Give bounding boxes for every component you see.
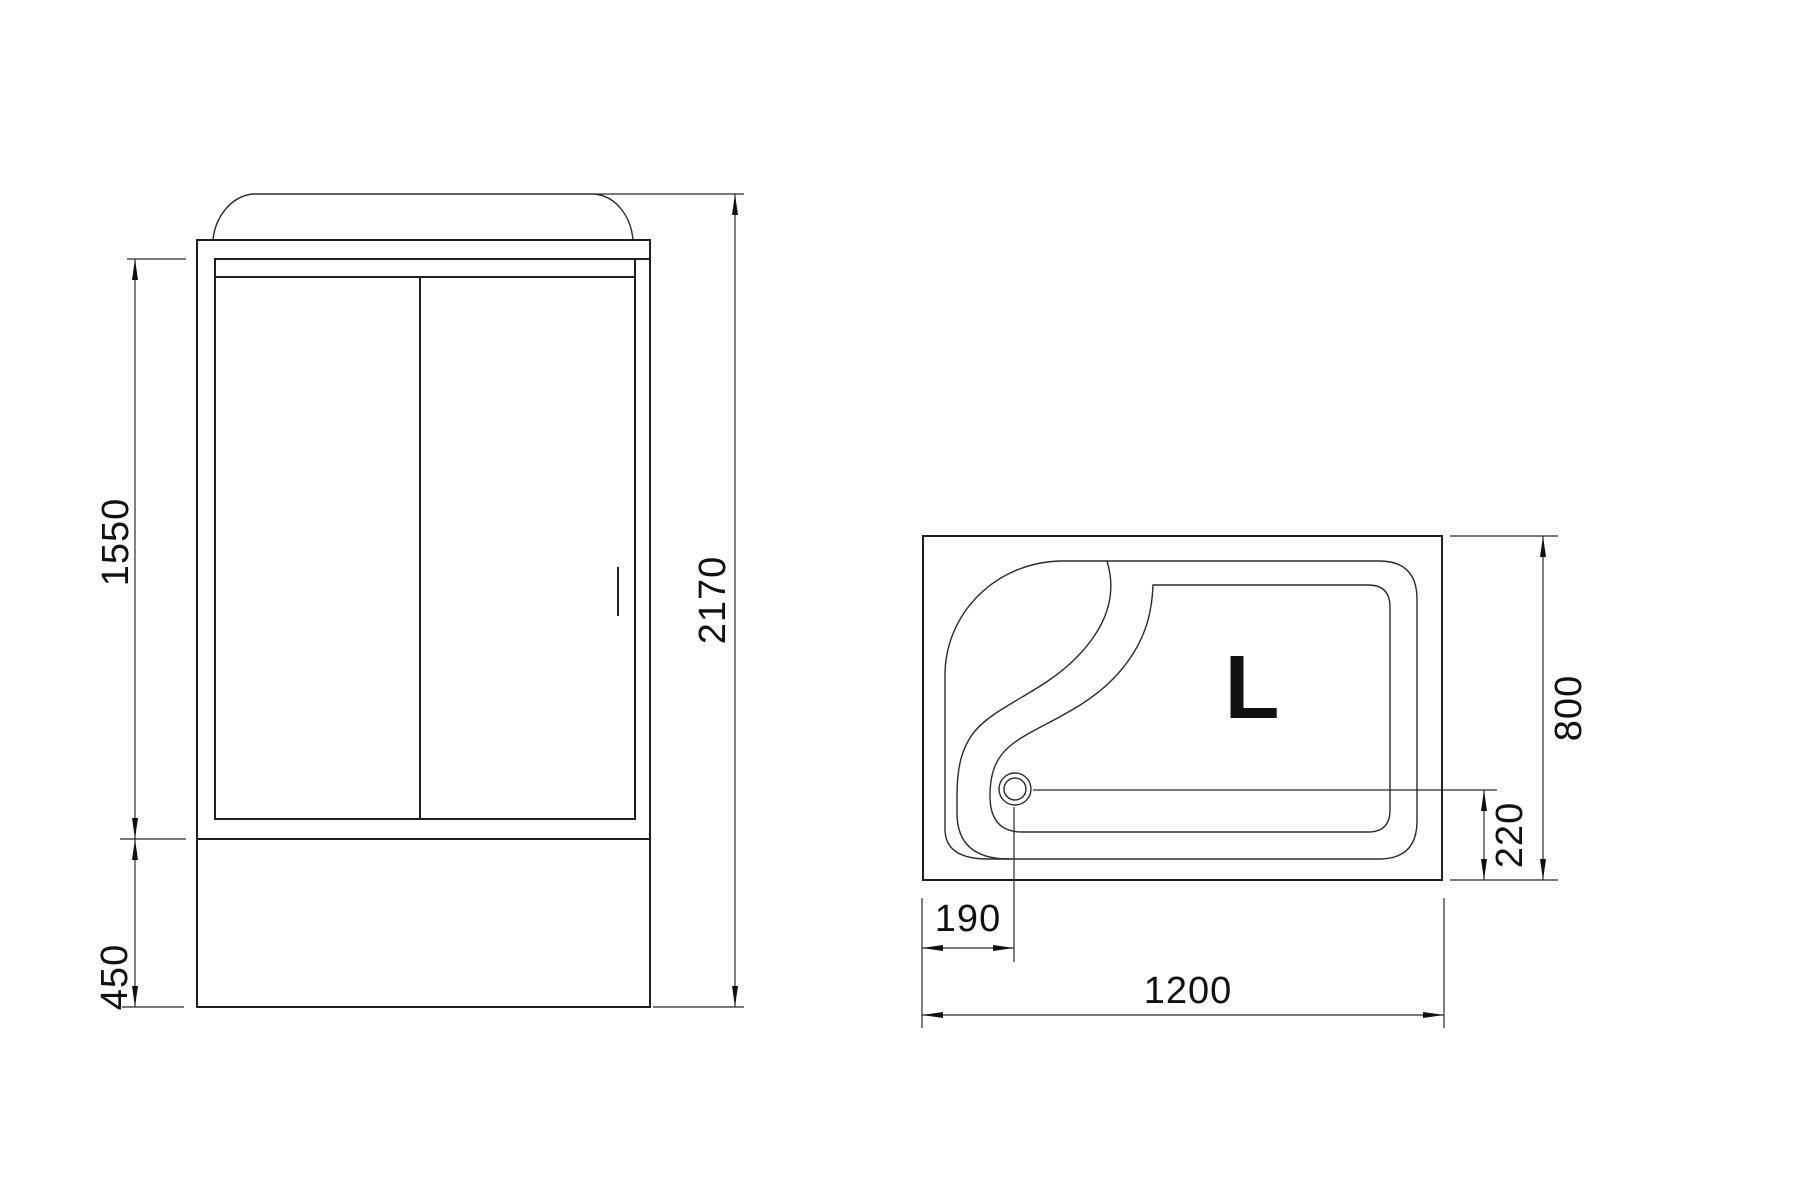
top-view-dimensions: 800 220 190 1200: [922, 536, 1590, 1028]
shower-cabin-dimension-drawing: 1550 450 2170 L: [0, 0, 1800, 1200]
cabin-frame: [197, 240, 650, 1007]
arrowhead-down: [1540, 859, 1546, 880]
dim-text-door-height: 1550: [95, 498, 137, 587]
seat-wall-outer-curve: [957, 561, 1111, 859]
arrowhead-down: [732, 986, 738, 1007]
tray-inner-rim: [945, 561, 1417, 859]
drawing-page: 1550 450 2170 L: [0, 0, 1800, 1200]
dim-text-total-width: 1200: [1144, 970, 1233, 1012]
arrowhead-down: [132, 818, 138, 839]
top-view: L 800 220 190: [922, 536, 1590, 1028]
arrowhead-right: [993, 945, 1014, 951]
dim-text-drain-from-left: 190: [935, 898, 1001, 940]
arrowhead-left: [922, 945, 943, 951]
arrowhead-up: [132, 839, 138, 860]
arrowhead-right: [1423, 1012, 1444, 1018]
arrowhead-up: [732, 194, 738, 215]
arrowhead-down: [1481, 859, 1487, 880]
dim-text-total-height: 2170: [692, 556, 734, 645]
arrowhead-up: [1481, 790, 1487, 811]
dim-text-base-height: 450: [94, 944, 136, 1010]
dim-text-total-depth: 800: [1548, 675, 1590, 741]
arrowhead-up: [132, 259, 138, 280]
tray-outer-rect: [923, 536, 1442, 880]
arrowhead-left: [922, 1012, 943, 1018]
floor-outline: [990, 585, 1390, 832]
arrowhead-up: [1540, 536, 1546, 557]
orientation-label: L: [1225, 638, 1280, 738]
roof-dome-outline: [213, 194, 633, 240]
front-view: 1550 450 2170: [94, 194, 744, 1010]
drain: [999, 773, 1031, 805]
drain-inner-circle: [1004, 778, 1026, 800]
dim-text-drain-from-bottom: 220: [1489, 802, 1531, 868]
